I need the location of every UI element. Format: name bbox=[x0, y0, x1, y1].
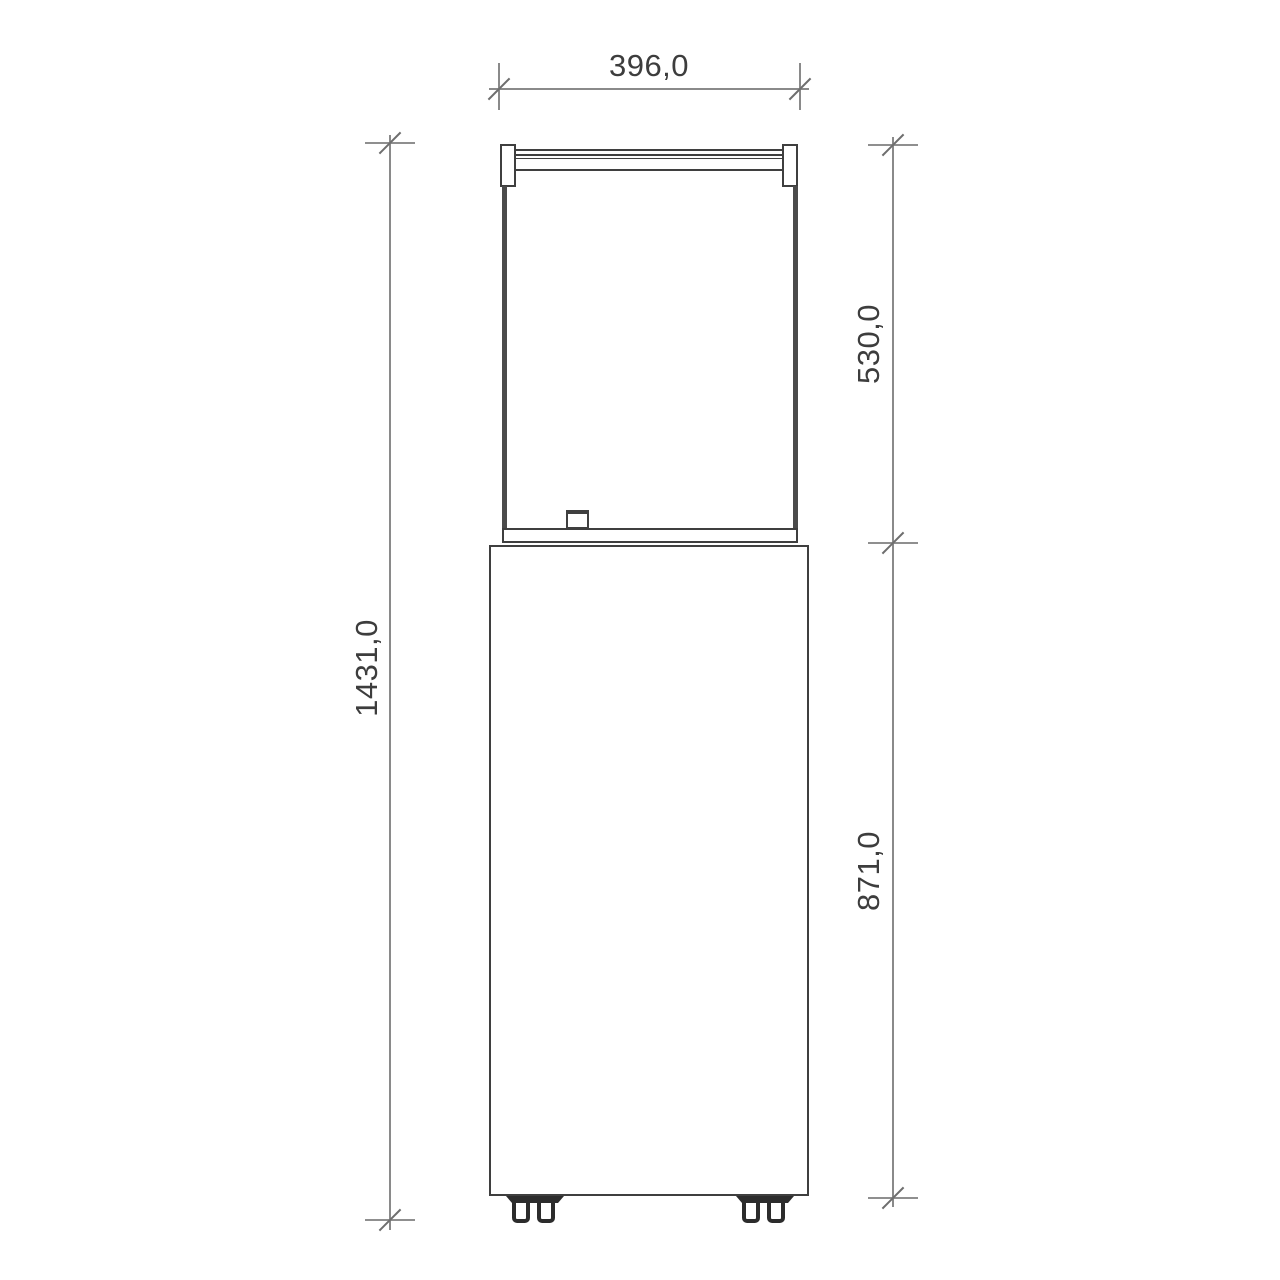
top-rail-inner-line-lower bbox=[516, 158, 782, 160]
total-height-dim-label: 1431,0 bbox=[349, 619, 385, 717]
caster-wheel-left-inner bbox=[537, 1199, 555, 1223]
left-dim-line bbox=[389, 135, 391, 1230]
base-cabinet bbox=[489, 545, 809, 1196]
right-dim-line bbox=[892, 137, 894, 1207]
base-height-dim-label: 871,0 bbox=[851, 831, 887, 911]
caster-wheel-right-inner bbox=[742, 1199, 760, 1223]
width-dim-line bbox=[489, 88, 809, 90]
caster-wheel-right-outer bbox=[767, 1199, 785, 1223]
glass-panel-edge-right bbox=[793, 186, 798, 528]
top-rail-inner-line-upper bbox=[516, 154, 782, 156]
collar-plate bbox=[502, 528, 798, 543]
glass-height-dim-label: 530,0 bbox=[851, 304, 887, 384]
technical-drawing-canvas: 396,0 530,0 871,0 1431,0 bbox=[0, 0, 1280, 1280]
width-dim-label: 396,0 bbox=[609, 48, 689, 84]
top-rail-end-cap-right bbox=[782, 144, 798, 187]
glass-panel-edge-left bbox=[502, 186, 507, 528]
burner-block bbox=[566, 510, 589, 529]
caster-wheel-left-outer bbox=[512, 1199, 530, 1223]
top-rail-band bbox=[508, 149, 790, 171]
top-rail-end-cap-left bbox=[500, 144, 516, 187]
